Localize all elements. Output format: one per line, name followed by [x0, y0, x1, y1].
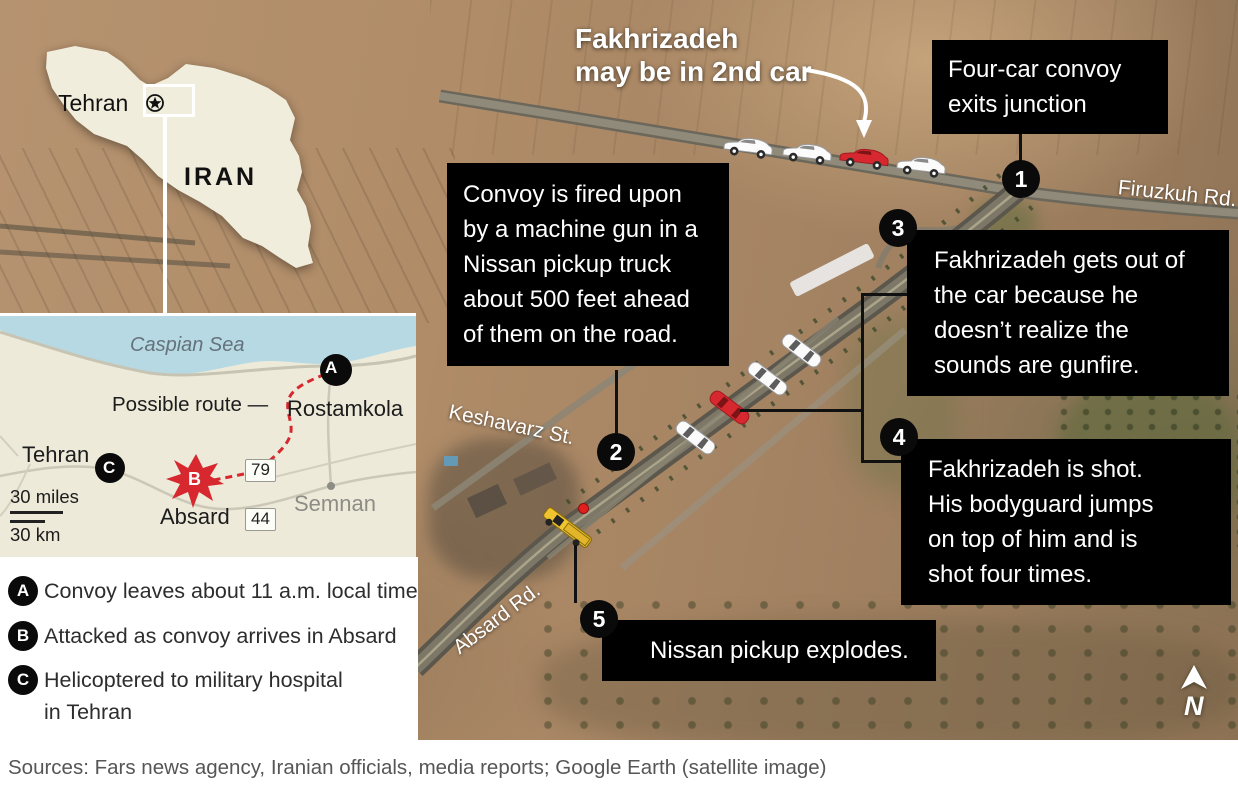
legend-marker-c: C — [8, 665, 38, 695]
semnan-label: Semnan — [294, 491, 376, 517]
step-marker-5: 5 — [580, 600, 618, 638]
callout-box-4: Fakhrizadeh is shot. His bodyguard jumps… — [901, 439, 1231, 605]
route-shield-44: 44 — [245, 508, 276, 531]
map-tehran-label: Tehran — [22, 442, 89, 468]
legend-marker-a: A — [8, 576, 38, 606]
legend-marker-b: B — [8, 621, 38, 651]
fakhrizadeh-note-line2: may be in 2nd car — [575, 55, 812, 88]
fakhrizadeh-note: Fakhrizadeh may be in 2nd car — [575, 22, 812, 88]
fakhrizadeh-note-line1: Fakhrizadeh — [575, 22, 812, 55]
legend-text-b: Attacked as convoy arrives in Absard — [44, 624, 397, 649]
scale-miles-bar — [10, 511, 63, 514]
locator-connector-line — [163, 117, 167, 316]
legend-text-a: Convoy leaves about 11 a.m. local time — [44, 579, 418, 604]
step-marker-4: 4 — [880, 418, 918, 456]
scale-km-label: 30 km — [10, 524, 60, 546]
bracket-pointer-arm — [740, 409, 862, 412]
callout-box-2: Convoy is fired upon by a machine gun in… — [447, 163, 729, 366]
legend-text-c-line2: in Tehran — [44, 700, 132, 725]
route-shield-79: 79 — [245, 459, 276, 482]
callout-box-1: Four-car convoy exits junction — [932, 40, 1168, 134]
map-marker-a: A — [325, 358, 337, 378]
gun-position-dot — [578, 503, 589, 514]
scale-miles-label: 30 miles — [10, 486, 79, 508]
bracket-spine — [861, 293, 864, 463]
rostamkola-label: Rostamkola — [287, 396, 403, 422]
map-marker-b: B — [188, 469, 201, 490]
step-marker-1: 1 — [1002, 160, 1040, 198]
step-marker-2: 2 — [597, 433, 635, 471]
detail-map-panel: Caspian Sea A Possible route — Rostamkol… — [0, 313, 416, 557]
map-marker-c: C — [103, 458, 115, 478]
infographic-canvas: Firuzkuh Rd. Keshavarz St. Absard Rd. Te… — [0, 0, 1238, 788]
absard-label: Absard — [160, 504, 230, 530]
callout-box-3: Fakhrizadeh gets out of the car because … — [907, 230, 1229, 396]
inset-tehran-label: Tehran — [58, 90, 128, 117]
tehran-locator-box — [143, 84, 195, 117]
bracket-bottom-arm — [861, 460, 902, 463]
callout-box-5: Nissan pickup explodes. — [602, 620, 936, 681]
legend-text-c-line1: Helicoptered to military hospital — [44, 668, 343, 693]
possible-route-label: Possible route — — [112, 393, 268, 417]
legend-panel: A Convoy leaves about 11 a.m. local time… — [0, 557, 418, 740]
buildings-shadow-patch — [428, 438, 580, 580]
connector-5 — [574, 545, 577, 603]
bracket-top-arm — [861, 293, 908, 296]
connector-2 — [615, 370, 618, 434]
scale-km-bar — [10, 520, 45, 523]
caspian-sea-label: Caspian Sea — [130, 334, 245, 357]
step-marker-3: 3 — [879, 209, 917, 247]
inset-country-label: IRAN — [184, 163, 257, 192]
source-text: Sources: Fars news agency, Iranian offic… — [8, 756, 826, 780]
source-bar: Sources: Fars news agency, Iranian offic… — [0, 740, 1238, 788]
